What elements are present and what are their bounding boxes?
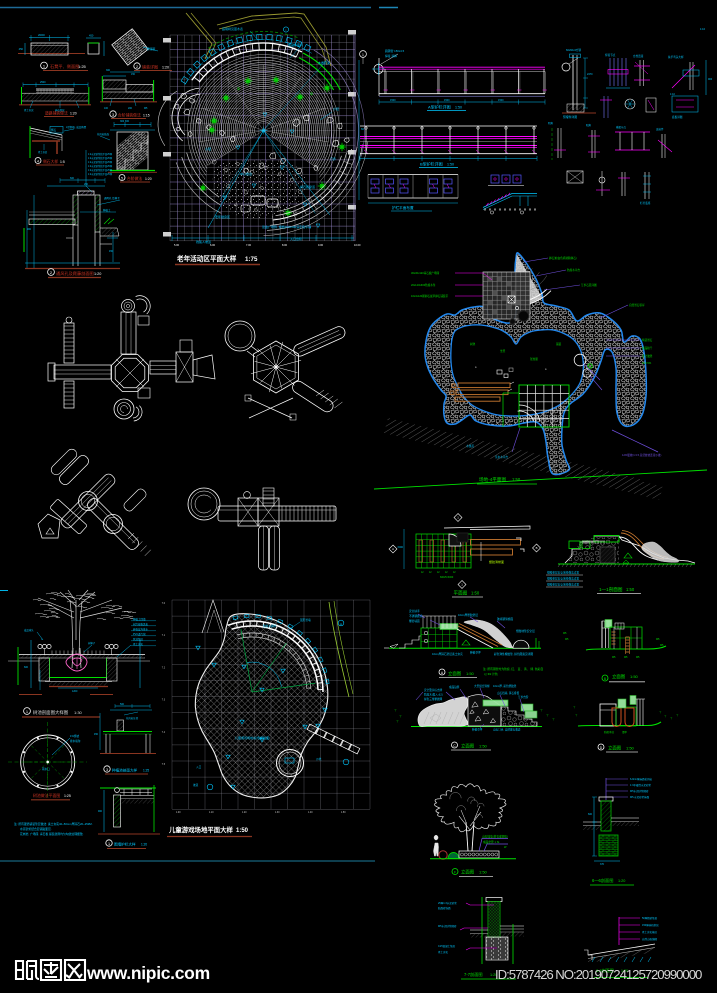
svg-text:2: 2 <box>136 65 138 69</box>
svg-text:通风孔 铁箅子: 通风孔 铁箅子 <box>104 196 120 200</box>
svg-text:1:10: 1:10 <box>700 27 706 31</box>
svg-text:玻璃钢滑梯面: 玻璃钢滑梯面 <box>497 617 513 621</box>
svg-text:7-7剖面图: 7-7剖面图 <box>464 971 483 978</box>
svg-text:种植草坪: 种植草坪 <box>472 728 483 732</box>
svg-text:2500: 2500 <box>40 81 46 84</box>
svg-text:安全扶手: 安全扶手 <box>409 609 420 613</box>
svg-text:1.10: 1.10 <box>209 812 214 814</box>
svg-text:25厚1:3水泥砂浆: 25厚1:3水泥砂浆 <box>438 901 457 905</box>
svg-text:成品球头: 成品球头 <box>24 628 34 632</box>
svg-text:自然山石铺砌: 自然山石铺砌 <box>642 937 658 941</box>
svg-text:栏杆底座: 栏杆底座 <box>640 201 651 205</box>
svg-text:1.40: 1.40 <box>308 812 313 814</box>
svg-text:500: 500 <box>120 703 125 706</box>
svg-text:1: 1 <box>362 53 364 57</box>
svg-text:种植草坪: 种植草坪 <box>470 651 481 655</box>
svg-text:中心舞台: 中心舞台 <box>240 171 252 176</box>
svg-text:30x30x120青石板广场砖: 30x30x120青石板广场砖 <box>411 271 440 275</box>
svg-text:坡道: 坡道 <box>193 783 199 787</box>
svg-text:1500: 1500 <box>444 99 450 102</box>
svg-text:丫: 丫 <box>676 713 679 717</box>
svg-text:成品秋千: 成品秋千 <box>642 346 653 350</box>
svg-text:素土夯实: 素土夯实 <box>438 950 449 954</box>
svg-text:山石挡墙, 黄石叠置: 山石挡墙, 黄石叠置 <box>497 691 520 695</box>
svg-text:汀步石见详图: 汀步石见详图 <box>581 283 597 287</box>
svg-text:1%找坡: 1%找坡 <box>70 734 79 738</box>
svg-text:树池: 树池 <box>470 342 476 346</box>
svg-text:坐凳: 坐凳 <box>500 349 506 353</box>
svg-text:A: A <box>340 622 342 626</box>
svg-text:1:50: 1:50 <box>471 591 480 596</box>
svg-text:450: 450 <box>94 733 99 736</box>
svg-text:900: 900 <box>27 228 32 231</box>
svg-text:6—6剖面图: 6—6剖面图 <box>592 877 613 884</box>
svg-text:S=2.5%: S=2.5% <box>642 361 652 365</box>
svg-text:塑胶地垫安全层: 塑胶地垫安全层 <box>516 629 535 633</box>
svg-text:1:50: 1:50 <box>630 674 639 679</box>
svg-text:10x4x120鹅卵石嵌草卵石铺装带: 10x4x120鹅卵石嵌草卵石铺装带 <box>411 294 449 298</box>
svg-text:庭荫树见苗木表: 庭荫树见苗木表 <box>222 26 243 31</box>
svg-text:C15混凝土垫层: C15混凝土垫层 <box>438 944 456 948</box>
svg-text:山石汀步, 自然置石收边: 山石汀步, 自然置石收边 <box>493 728 521 732</box>
svg-text:450: 450 <box>89 34 94 38</box>
svg-text:拼色三角攀爬网: 拼色三角攀爬网 <box>424 697 443 701</box>
svg-text:50厚粗砂垫层: 50厚粗砂垫层 <box>642 916 658 920</box>
svg-text:1:25: 1:25 <box>78 64 87 69</box>
svg-text:900: 900 <box>708 78 713 81</box>
svg-text:1: 1 <box>108 842 110 846</box>
svg-text:丫: 丫 <box>573 705 576 709</box>
svg-text:塑胶滑梯面: 塑胶滑梯面 <box>489 559 504 564</box>
svg-text:焊接 满焊: 焊接 满焊 <box>385 54 397 58</box>
svg-text:3: 3 <box>112 113 114 117</box>
svg-text:9.00: 9.00 <box>318 243 324 247</box>
svg-text:1:20: 1:20 <box>162 66 169 70</box>
svg-text:入口台阶: 入口台阶 <box>290 236 302 241</box>
svg-text:弧形景墙: 弧形景墙 <box>300 618 311 622</box>
svg-text:250: 250 <box>84 183 89 186</box>
svg-text:山石挡墙(黄石或湖石): 山石挡墙(黄石或湖石) <box>482 835 508 839</box>
svg-text:2000: 2000 <box>38 33 45 37</box>
svg-text:立柱连接: 立柱连接 <box>633 54 644 58</box>
svg-text:种植池剖面大样: 种植池剖面大样 <box>112 768 138 773</box>
svg-text:1.00: 1.00 <box>176 812 181 814</box>
svg-text:1:20: 1:20 <box>141 843 147 847</box>
svg-text:特选景石: 特选景石 <box>642 338 653 342</box>
svg-text:丫: 丫 <box>399 714 402 718</box>
svg-text:1:75: 1:75 <box>245 256 258 263</box>
svg-text:PVC透气管: PVC透气管 <box>133 632 146 636</box>
svg-text:扶手弯头大样: 扶手弯头大样 <box>668 55 684 59</box>
svg-text:卵石滩(白色机制鹅卵石): 卵石滩(白色机制鹅卵石) <box>549 256 577 260</box>
svg-text:ID:5787426 NO:2019072412572099: ID:5787426 NO:20190724125720990000 <box>495 967 702 982</box>
svg-text:B型护栏详图: B型护栏详图 <box>420 161 443 167</box>
svg-text:树穴规格见表: 树穴规格见表 <box>133 622 149 626</box>
svg-text:1:50: 1:50 <box>455 106 462 110</box>
svg-text:种植土: 种植土 <box>103 208 111 212</box>
svg-text:1.30: 1.30 <box>275 812 280 814</box>
svg-text:900: 900 <box>98 810 103 813</box>
svg-text:10cm厚塑胶垫层: 10cm厚塑胶垫层 <box>458 613 478 617</box>
svg-text:汀步台阶: 汀步台阶 <box>518 695 529 699</box>
svg-text:防腐木座椅: 防腐木座椅 <box>263 624 276 628</box>
svg-text:攀岩墙面: 攀岩墙面 <box>409 619 420 623</box>
svg-text:防腐木平台: 防腐木平台 <box>567 268 580 272</box>
svg-text:焦渣垫层: 焦渣垫层 <box>133 637 144 641</box>
svg-text:1.50: 1.50 <box>341 812 346 814</box>
svg-text:立面图: 立面图 <box>612 673 626 680</box>
svg-text:5.00: 5.00 <box>174 243 180 247</box>
svg-text:M5水泥砂浆砌砖: M5水泥砂浆砌砖 <box>438 924 457 928</box>
svg-text:1:20: 1:20 <box>70 112 77 116</box>
svg-text:花岗岩贴面: 花岗岩贴面 <box>97 132 110 136</box>
svg-text:成品木座椅: 成品木座椅 <box>288 42 303 47</box>
svg-text:1:3干硬性水泥砂浆: 1:3干硬性水泥砂浆 <box>630 783 651 787</box>
svg-text:塑胶垫层安全地垫做法详见: 塑胶垫层安全地垫做法详见 <box>547 577 580 581</box>
svg-text:通风孔及爬藤剖面图: 通风孔及爬藤剖面图 <box>56 270 94 277</box>
svg-text:A型护栏详图: A型护栏详图 <box>428 104 451 110</box>
svg-text:立面图: 立面图 <box>448 670 462 677</box>
svg-text:1:20: 1:20 <box>94 272 101 276</box>
svg-text:残疾人坡道: 残疾人坡道 <box>196 239 211 244</box>
svg-text:1—1剖面图: 1—1剖面图 <box>599 586 623 593</box>
svg-text:老年健身区: 老年健身区 <box>215 214 230 219</box>
svg-text:1200: 1200 <box>72 690 78 693</box>
svg-text:M5.水泥砂浆抹面: M5.水泥砂浆抹面 <box>630 795 650 799</box>
svg-text:600x5=3000: 600x5=3000 <box>440 576 454 579</box>
svg-text:花岗岩压顶: 花岗岩压顶 <box>126 716 139 720</box>
svg-text:侧石大样: 侧石大样 <box>43 159 58 164</box>
svg-text:彩色弹性橡胶垫, 拼色图案见详图: 彩色弹性橡胶垫, 拼色图案见详图 <box>494 652 533 656</box>
svg-text:入口: 入口 <box>196 765 202 769</box>
svg-text:600: 600 <box>588 813 593 816</box>
svg-text:1:15: 1:15 <box>143 114 150 118</box>
svg-text:丫: 丫 <box>540 708 543 712</box>
svg-text:丫: 丫 <box>552 717 555 721</box>
svg-text:1:50: 1:50 <box>236 828 249 834</box>
svg-text:150: 150 <box>131 73 136 76</box>
svg-text:150厚碎石垫层: 150厚碎石垫层 <box>642 923 659 927</box>
svg-text:10cm厚碎石垫层素土夯实: 10cm厚碎石垫层素土夯实 <box>432 652 463 656</box>
svg-text:沙坑: 沙坑 <box>316 757 322 761</box>
svg-text:1.20: 1.20 <box>242 812 247 814</box>
svg-text:烫金广场砖, 规格300x300深灰色平铺: 烫金广场砖, 规格300x300深灰色平铺 <box>262 224 311 229</box>
svg-text:5: 5 <box>121 177 123 181</box>
svg-text:60x60x4方钢: 60x60x4方钢 <box>566 48 581 52</box>
svg-text:L型侧石, 成品购置: L型侧石, 成品购置 <box>66 125 87 129</box>
svg-text:草: 草 <box>237 86 240 91</box>
svg-text:防腐木柱: 防腐木柱 <box>604 730 615 734</box>
svg-text:6-8cm厚麻面花岗岩: 6-8cm厚麻面花岗岩 <box>630 777 652 781</box>
svg-text:1:50: 1:50 <box>466 671 475 676</box>
svg-text:注: 所有钢管均为防腐, 红、 蓝、 黄、 绿, 色彩自: 注: 所有钢管均为防腐, 红、 蓝、 黄、 绿, 色彩自 <box>483 667 543 671</box>
svg-text:老年活动区平面大样: 老年活动区平面大样 <box>176 254 237 263</box>
svg-text:∅: ∅ <box>41 638 43 641</box>
svg-text:树池剖面图大样图: 树池剖面图大样图 <box>33 709 69 716</box>
svg-text:预埋件详图: 预埋件详图 <box>563 115 577 119</box>
svg-text:阴角: 阴角 <box>548 121 554 125</box>
svg-text:素土夯实: 素土夯实 <box>133 642 144 646</box>
svg-text:1500: 1500 <box>390 99 396 102</box>
svg-text:6000: 6000 <box>398 546 404 549</box>
svg-text:200: 200 <box>128 107 133 110</box>
svg-text:10.00: 10.00 <box>354 243 361 247</box>
svg-text:塑胶垫层安全地垫做法详见: 塑胶垫层安全地垫做法详见 <box>547 583 580 587</box>
svg-text:木质花架: 木质花架 <box>318 60 330 65</box>
svg-text:卵石按摩道: 卵石按摩道 <box>300 184 315 189</box>
svg-text:M5水泥砂浆砌砖: M5水泥砂浆砌砖 <box>630 789 649 793</box>
svg-text:底板详图: 底板详图 <box>672 115 683 119</box>
svg-text:1:20: 1:20 <box>618 879 625 883</box>
svg-text:F: F <box>454 871 456 875</box>
svg-text:B: B <box>536 546 538 550</box>
svg-text:素土夯实: 素土夯实 <box>24 108 34 112</box>
svg-text:1500: 1500 <box>498 99 504 102</box>
svg-text:素土夯实基层: 素土夯实基层 <box>642 930 658 934</box>
svg-text:1:50: 1:50 <box>626 746 635 751</box>
svg-text:600: 600 <box>70 177 75 180</box>
svg-text:道路铺装做法: 道路铺装做法 <box>45 111 68 116</box>
svg-text:铺装详图: 铺装详图 <box>142 64 158 70</box>
svg-text:铺装: 铺装 <box>556 342 562 346</box>
svg-text:6.00: 6.00 <box>210 243 216 247</box>
svg-text:注: 所有硬质铺装垫层做法: 素土夯实40~50mm厚碎石2: 注: 所有硬质铺装垫层做法: 素土夯实40~50mm厚碎石20~25#M. <box>14 822 93 826</box>
svg-text:1:25: 1:25 <box>143 769 149 773</box>
svg-text:丫: 丫 <box>394 708 397 712</box>
svg-text:草: 草 <box>310 91 313 96</box>
svg-text:370: 370 <box>600 863 605 866</box>
svg-text:丫: 丫 <box>659 710 662 714</box>
svg-text:1:50: 1:50 <box>512 477 521 482</box>
svg-text:1:25: 1:25 <box>64 794 71 798</box>
svg-text:立面图: 立面图 <box>461 869 475 876</box>
svg-text:450: 450 <box>109 250 114 253</box>
svg-text:立面图: 立面图 <box>461 743 475 750</box>
svg-text:成品钻筒: 成品钻筒 <box>449 685 460 689</box>
svg-text:滑竿: 滑竿 <box>622 730 628 734</box>
svg-text:10cm厚, 彩色塑胶垫: 10cm厚, 彩色塑胶垫 <box>493 684 517 688</box>
svg-text:连接件: 连接件 <box>656 127 664 131</box>
svg-text:塑胶垫层安全地垫做法详见: 塑胶垫层安全地垫做法详见 <box>547 571 580 575</box>
svg-text:碎石盲沟排水: 碎石盲沟排水 <box>133 627 149 631</box>
svg-text:www.nipic.com: www.nipic.com <box>86 963 210 983</box>
svg-text:台阶铺装做法: 台阶铺装做法 <box>118 113 141 118</box>
svg-text:1:30: 1:30 <box>74 710 83 715</box>
svg-text:丫: 丫 <box>396 719 399 723</box>
svg-text:安全警示标志牌: 安全警示标志牌 <box>424 688 443 692</box>
svg-text:护栏平面布置: 护栏平面布置 <box>392 205 414 210</box>
svg-text:1:20: 1:20 <box>145 177 152 181</box>
svg-text:立面图: 立面图 <box>608 745 622 752</box>
svg-text:A: A <box>392 547 394 551</box>
svg-text:1:50: 1:50 <box>626 587 635 592</box>
svg-text:大型组合滑梯: 大型组合滑梯 <box>474 684 490 688</box>
svg-text:自然景石驳岸: 自然景石驳岸 <box>629 303 645 307</box>
svg-text:小径: 小径 <box>333 106 339 111</box>
svg-text:侧石: 侧石 <box>51 128 57 132</box>
svg-text:3: 3 <box>106 768 108 772</box>
svg-text:种植土回填: 种植土回填 <box>133 617 146 621</box>
svg-text:树池做法平面图: 树池做法平面图 <box>33 793 60 798</box>
svg-text:横梁节点: 横梁节点 <box>616 125 627 129</box>
svg-text:圆钢管 150x4.5: 圆钢管 150x4.5 <box>385 49 405 53</box>
svg-text:阳角: 阳角 <box>586 123 592 127</box>
svg-text:儿童游戏场地平面大样: 儿童游戏场地平面大样 <box>168 825 234 834</box>
svg-text:12%缓坡(1:3.5,自然放坡连接沙滩): 12%缓坡(1:3.5,自然放坡连接沙滩) <box>622 453 661 457</box>
svg-text:1:50: 1:50 <box>479 870 488 875</box>
svg-text:雨水口: 雨水口 <box>42 767 50 771</box>
svg-text:儿童游戏场地(彩色塑胶面): 儿童游戏场地(彩色塑胶面) <box>235 735 270 740</box>
svg-text:7.00: 7.00 <box>246 243 252 247</box>
svg-text:场地-4平面图: 场地-4平面图 <box>479 476 506 483</box>
svg-text:丫: 丫 <box>670 716 673 720</box>
svg-text:20x120x600防腐木条: 20x120x600防腐木条 <box>411 283 436 287</box>
svg-text:台阶做法: 台阶做法 <box>127 176 142 181</box>
svg-text:100: 100 <box>104 107 109 110</box>
svg-text:小径: 小径 <box>205 146 211 151</box>
svg-text:以 Φ2 计色: 以 Φ2 计色 <box>484 672 498 676</box>
svg-text:1:10: 1:10 <box>670 93 675 96</box>
svg-text:300: 300 <box>106 69 111 72</box>
svg-text:300 300: 300 300 <box>120 120 130 123</box>
svg-text:成品坐凳 1 St: 成品坐凳 1 St <box>483 840 500 844</box>
svg-text:8.00: 8.00 <box>282 243 288 247</box>
svg-text:张拉膜: 张拉膜 <box>530 357 538 361</box>
svg-text:树箅子: 树箅子 <box>88 641 96 645</box>
svg-text:1:50: 1:50 <box>479 744 488 749</box>
svg-text:排水暗沟: 排水暗沟 <box>70 739 81 743</box>
svg-text:石凳平、侧面图: 石凳平、侧面图 <box>50 63 79 70</box>
svg-text:丫: 丫 <box>664 714 667 718</box>
svg-text:防腐木(楔入土2): 防腐木(楔入土2) <box>424 693 443 697</box>
svg-text:不锈钢爬梯: 不锈钢爬梯 <box>409 614 423 618</box>
svg-text:花岗岩, 广场砖, 青石板 铺装缝隙均匀勾缝处理细致.: 花岗岩, 广场砖, 青石板 铺装缝隙均匀勾缝处理细致. <box>20 832 84 836</box>
svg-text:450: 450 <box>19 47 24 51</box>
svg-text:4: 4 <box>37 160 39 164</box>
svg-text:围墙护栏大样: 围墙护栏大样 <box>114 842 136 847</box>
svg-text:1:5: 1:5 <box>60 160 65 164</box>
svg-text:600: 600 <box>24 666 29 669</box>
svg-text:安全胶垫: 安全胶垫 <box>642 354 653 358</box>
svg-text:汀步: 汀步 <box>330 156 336 161</box>
svg-text:1:50: 1:50 <box>447 163 454 167</box>
svg-text:焊接节点: 焊接节点 <box>605 53 616 57</box>
svg-text:砖铺装: 砖铺装 <box>147 47 156 51</box>
svg-text:丫: 丫 <box>546 713 549 717</box>
svg-text:贴面砖饰面: 贴面砖饰面 <box>438 906 451 910</box>
svg-text:水泥砂浆结合层铺贴面层.: 水泥砂浆结合层铺贴面层. <box>20 827 52 831</box>
svg-text:2470: 2470 <box>587 73 593 76</box>
svg-text:丫: 丫 <box>575 713 578 717</box>
